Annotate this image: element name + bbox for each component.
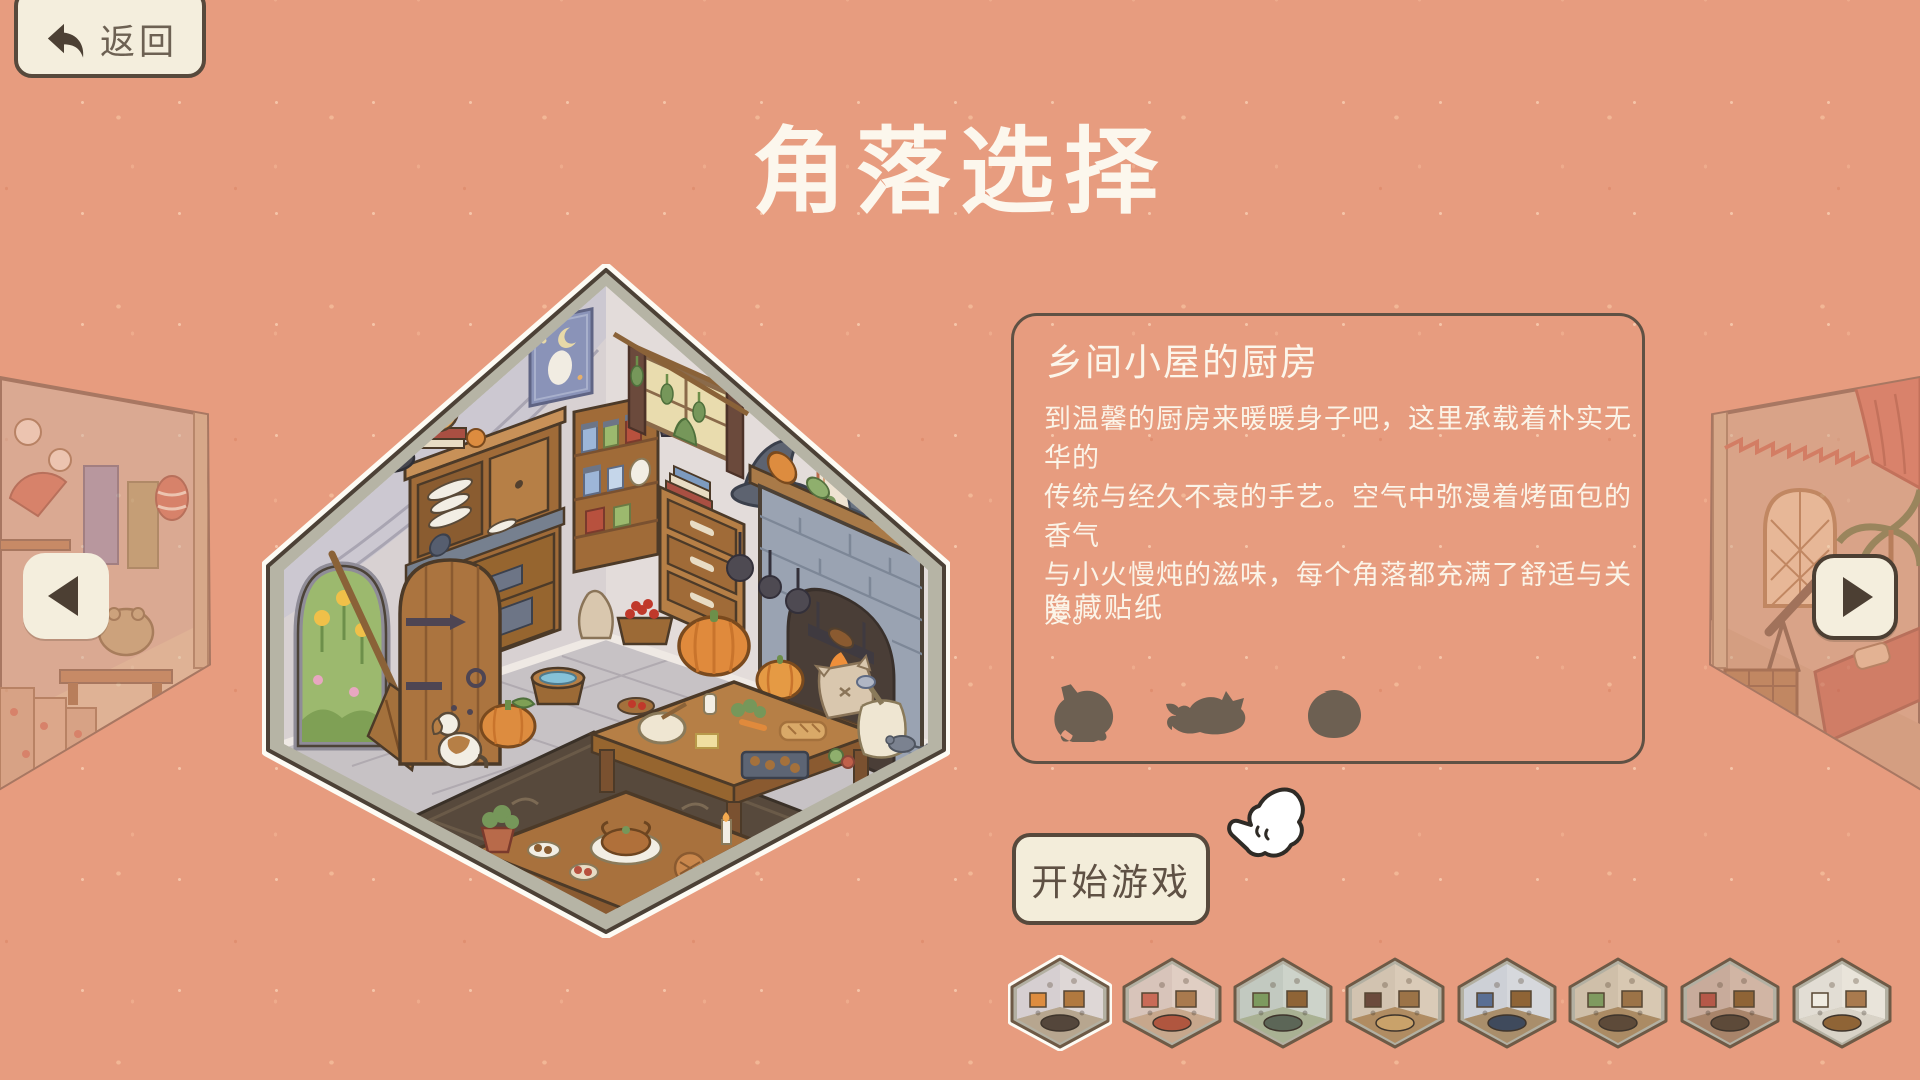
room-thumbnail-country-kitchen[interactable] [1008, 955, 1112, 1051]
room-illustration-cottage-kitchen [262, 264, 950, 938]
room-thumbnail-craft-workshop[interactable] [1566, 955, 1670, 1051]
room-title: 乡间小屋的厨房 [1046, 332, 1319, 386]
start-game-button[interactable]: 开始游戏 [1012, 833, 1210, 925]
sticker-silhouette-round-pot [1302, 686, 1366, 744]
corner-selection-screen: 返回 角落选择 [0, 0, 1920, 1080]
back-button[interactable]: 返回 [14, 0, 206, 78]
room-description-line: 到温馨的厨房来暖暖身子吧，这里承载着朴实无华的 [1044, 400, 1642, 478]
room-thumbnail-alchemist-study[interactable] [1455, 955, 1559, 1051]
right-triangle-icon [1843, 577, 1873, 617]
room-thumbnail-bright-bathhouse[interactable] [1790, 955, 1894, 1051]
room-info-panel: 乡间小屋的厨房 到温馨的厨房来暖暖身子吧，这里承载着朴实无华的 传统与经久不衰的… [1011, 313, 1645, 764]
hidden-stickers-label: 隐藏贴纸 [1044, 586, 1164, 626]
room-thumbnail-overgrown-greenhouse[interactable] [1231, 955, 1335, 1051]
room-description-line: 传统与经久不衰的手艺。空气中弥漫着烤面包的香气 [1044, 478, 1642, 556]
room-thumbnail-festive-parlor[interactable] [1678, 955, 1782, 1051]
room-thumbnail-red-bedroom[interactable] [1120, 955, 1224, 1051]
back-button-label: 返回 [100, 25, 178, 60]
sticker-silhouette-crouching-cat [1164, 690, 1260, 744]
page-title: 角落选择 [0, 96, 1920, 232]
carousel-prev-button[interactable] [23, 553, 109, 639]
back-arrow-icon [42, 20, 86, 60]
carousel-next-button[interactable] [1812, 554, 1898, 640]
start-game-label: 开始游戏 [1031, 852, 1191, 906]
sticker-silhouette-sitting-cat [1048, 674, 1124, 742]
left-triangle-icon [48, 576, 78, 616]
room-thumbnail-wooden-attic[interactable] [1343, 955, 1447, 1051]
hand-cursor-icon [1224, 782, 1310, 858]
